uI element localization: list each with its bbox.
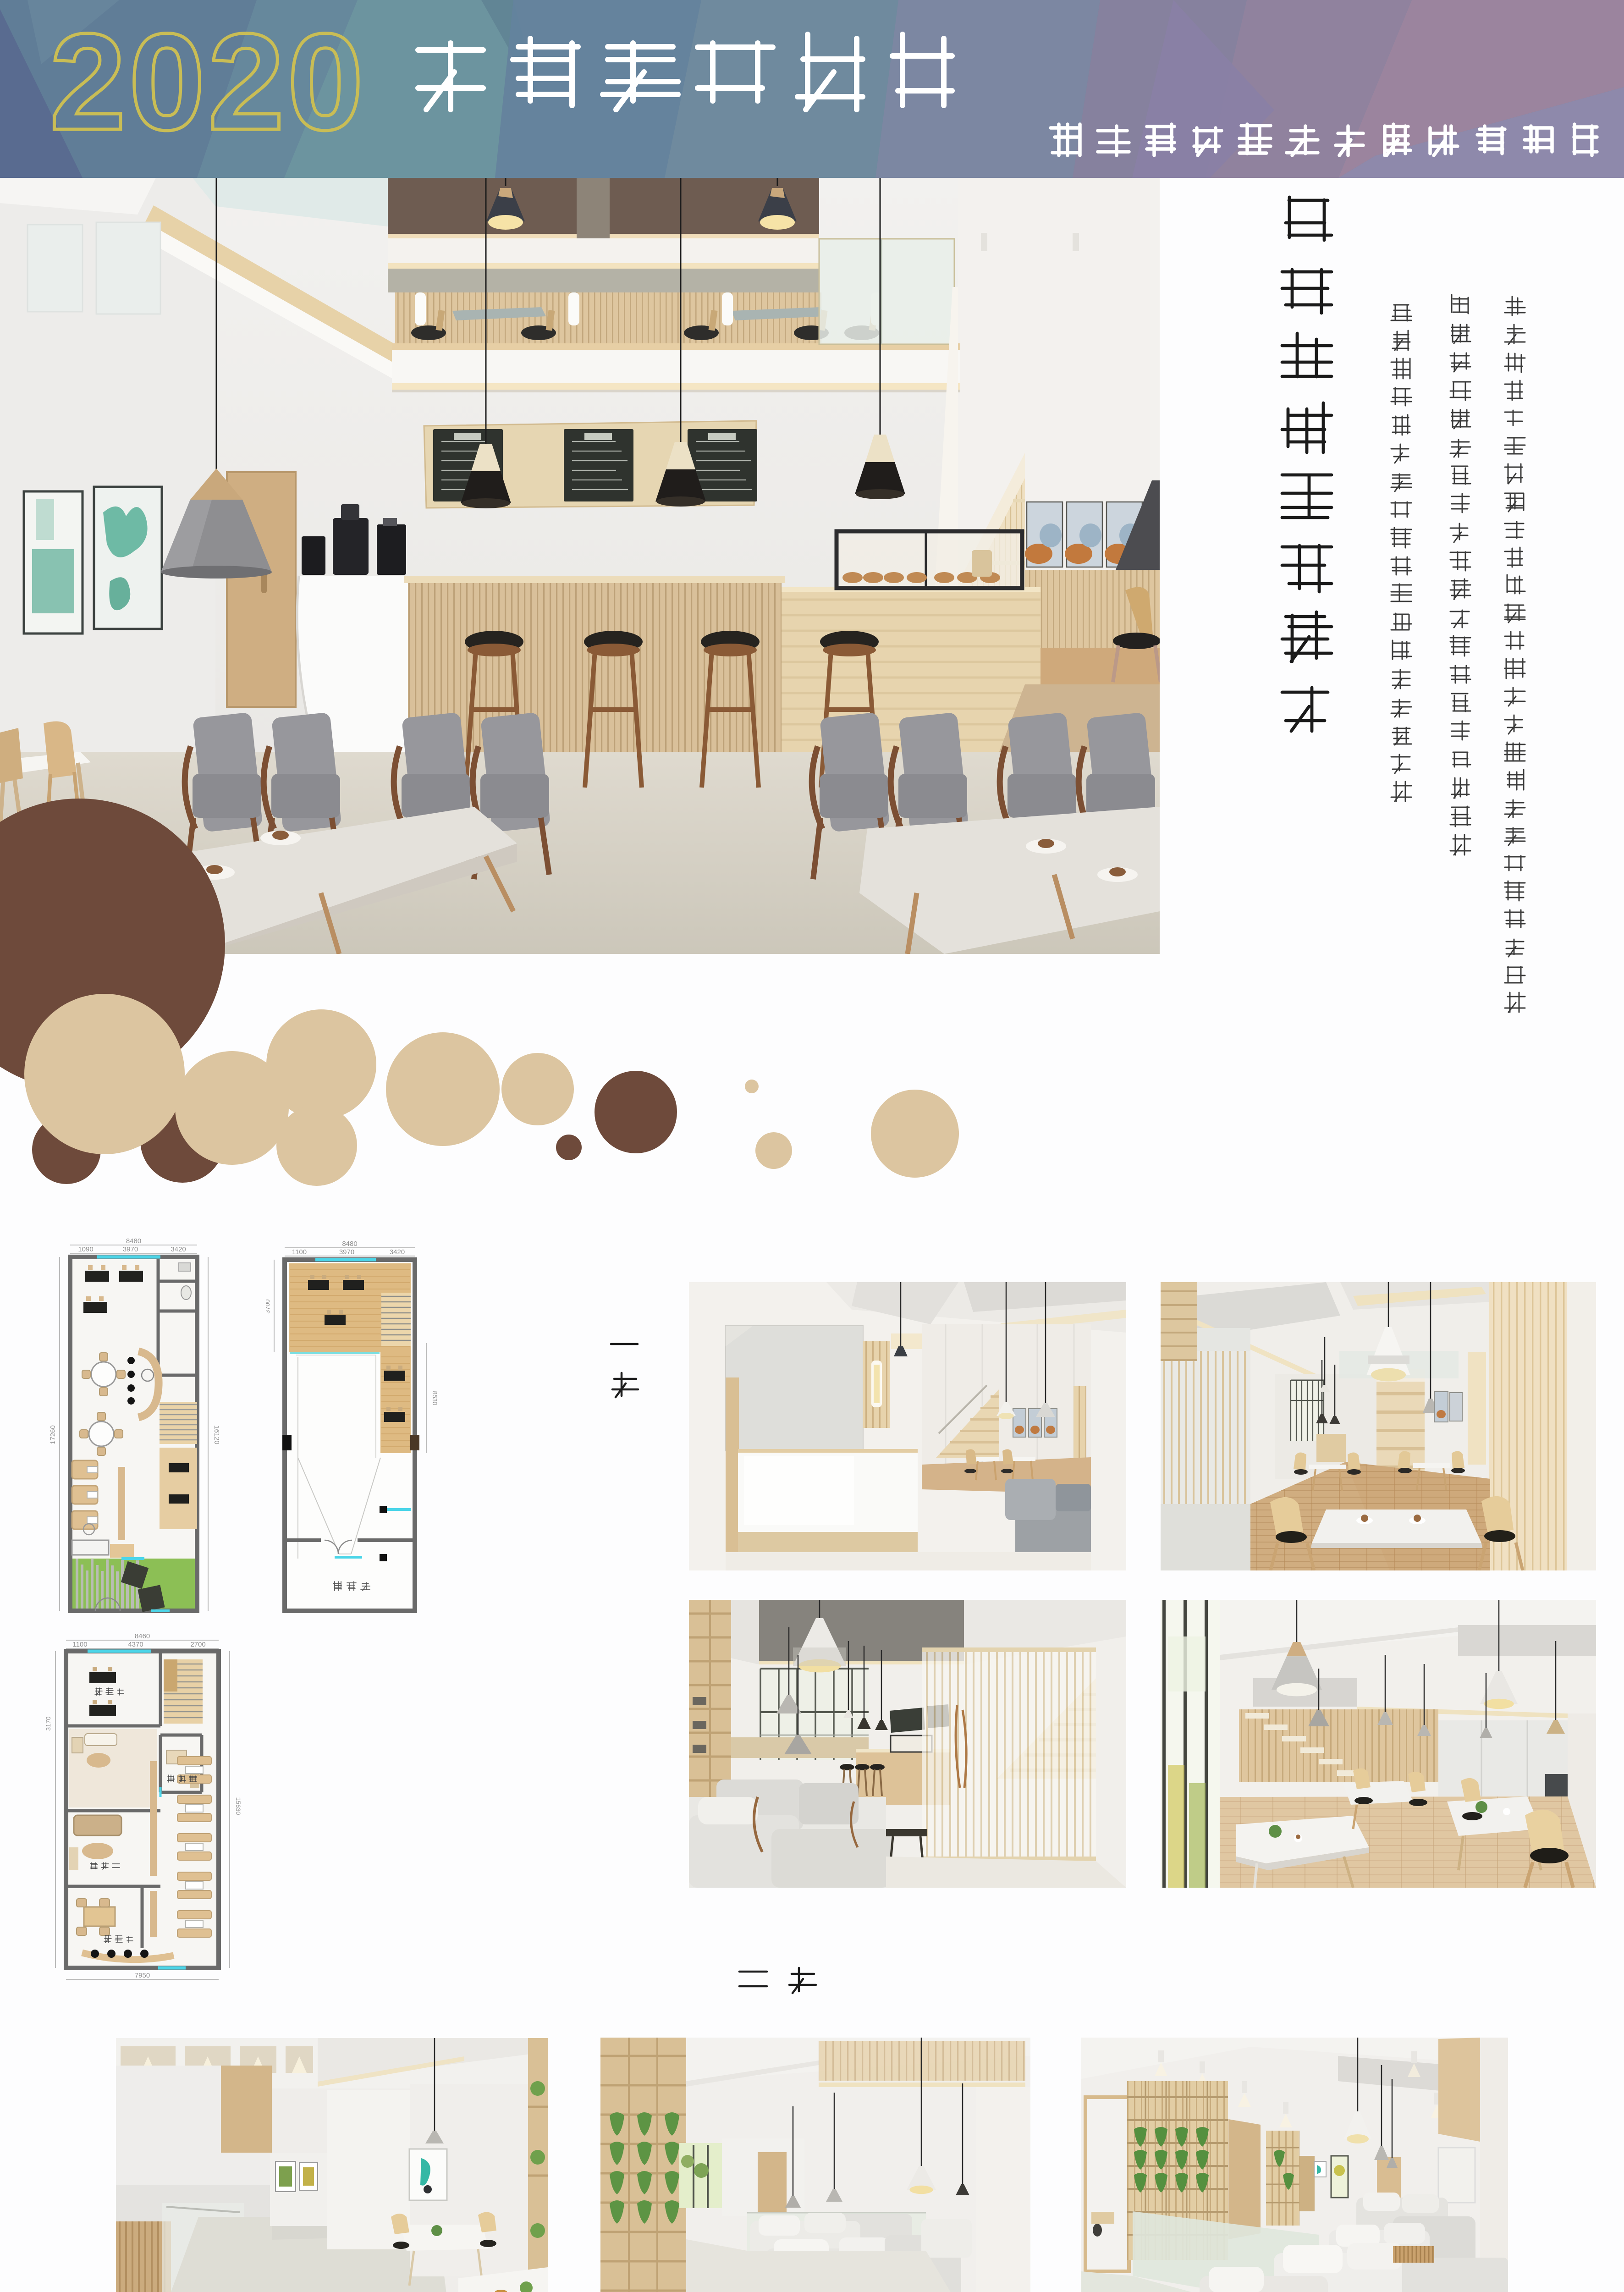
svg-text:17260: 17260: [49, 1425, 57, 1444]
svg-text:8480: 8480: [342, 1240, 357, 1248]
svg-text:8530: 8530: [431, 1391, 439, 1405]
svg-text:3700: 3700: [266, 1299, 271, 1313]
svg-text:1090: 1090: [78, 1245, 93, 1253]
svg-text:3970: 3970: [339, 1248, 354, 1256]
svg-text:16120: 16120: [213, 1425, 220, 1444]
svg-text:2700: 2700: [190, 1641, 205, 1648]
svg-text:1100: 1100: [292, 1248, 307, 1256]
svg-text:3420: 3420: [390, 1248, 405, 1256]
svg-text:2020: 2020: [50, 5, 366, 159]
svg-text:3970: 3970: [123, 1245, 138, 1253]
svg-text:7950: 7950: [135, 1972, 150, 1979]
svg-text:4370: 4370: [128, 1641, 143, 1648]
svg-text:15630: 15630: [235, 1797, 241, 1815]
svg-text:8480: 8480: [126, 1238, 141, 1245]
svg-text:8460: 8460: [135, 1632, 150, 1640]
svg-text:3420: 3420: [171, 1245, 186, 1253]
svg-text:3170: 3170: [44, 1716, 52, 1730]
svg-text:1100: 1100: [72, 1641, 87, 1648]
